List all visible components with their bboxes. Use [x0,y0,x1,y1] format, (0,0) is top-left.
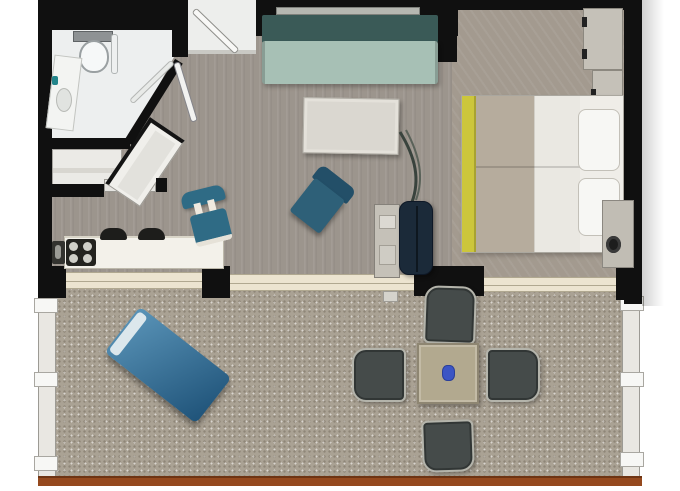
bed-crease [476,166,580,168]
bed-runner-yellow [462,96,476,252]
sink-basin [56,88,72,112]
bed-sheet [534,96,580,252]
railing-post [620,452,644,467]
sofa [262,6,438,84]
dining-chair [352,348,406,402]
entry-floor [188,0,256,54]
dining-chair [421,419,475,473]
kitchen-window-track [58,272,204,289]
shower-glass-screen [111,34,118,74]
terrace-railing-left [38,298,56,478]
burner [69,254,78,263]
dining-chair [423,285,477,345]
sofa-back [262,15,438,43]
bed-duvet [476,96,534,252]
tv-unit [399,201,433,275]
sliding-door-handle [383,291,398,302]
kitchen-sink-panel [52,241,65,264]
faucet [52,76,58,85]
wall-stub-kitchen [202,266,230,298]
wardrobe-handle [582,49,587,59]
media-cabinet [374,204,400,278]
wall-top-left [38,0,175,30]
wardrobe [583,8,623,70]
nightstand [602,200,634,268]
coffee-table [303,97,400,155]
bedside-lamp [606,236,621,253]
dining-chair [486,348,540,402]
pillow [578,109,620,171]
railing-post [34,372,58,387]
terrace-railing-bottom [38,476,642,486]
wall-closet-stub [44,184,104,197]
floor-plan [0,0,680,491]
burner [69,242,78,251]
railing-post [620,372,644,387]
stove [66,239,96,266]
railing-post [34,298,58,313]
bar-stool [138,228,165,240]
wall-entry-divider [172,0,188,57]
double-bed [462,96,623,252]
bar-stool [100,228,127,240]
entry-threshold [188,50,256,54]
toilet [79,40,109,73]
wall-corner-bottom-left [38,266,66,298]
sofa-window-bar [276,7,420,15]
plant-icon [390,128,430,208]
burner [83,242,92,251]
railing-post [34,456,58,471]
wardrobe-handle [582,17,587,27]
burner [83,254,92,263]
bedroom-window-track [482,277,618,292]
wall-corner-bottom-right [616,266,642,300]
wall-closet-post [156,178,167,192]
sofa-seat [262,41,438,84]
exterior-wall-shadow [642,0,664,306]
wall-bathroom-bottom [44,138,130,149]
table-vase [442,365,455,381]
